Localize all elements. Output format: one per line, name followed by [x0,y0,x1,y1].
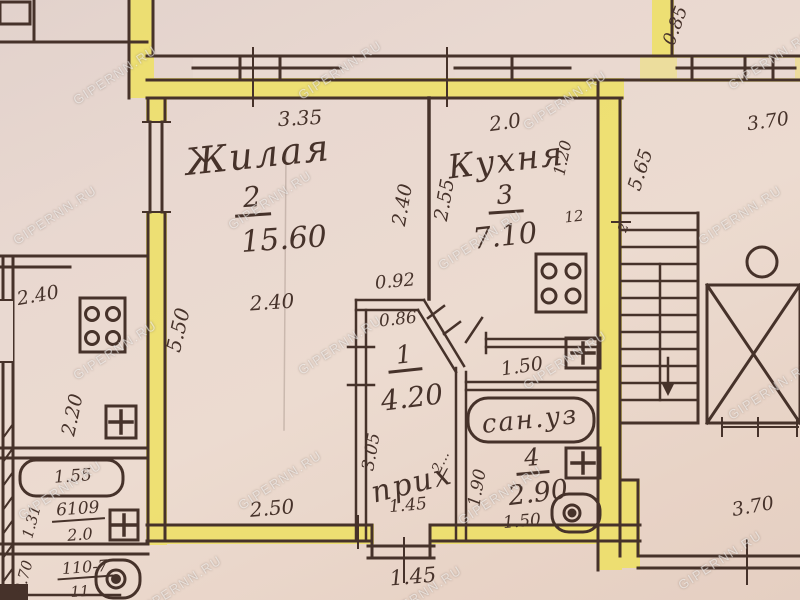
neighbor-code2-den: 11 [70,584,90,600]
garbage-chute-icon [747,247,777,277]
dim-hall-top: 0.86 [378,310,417,331]
window-kitchen [455,56,570,80]
staircase [612,213,698,423]
neighbor-code1-den: 2.0 [67,526,94,544]
dim-living-top: 3.35 [277,107,323,129]
room-number-hallway: 1 [386,340,423,373]
window-party-wall [143,122,170,212]
dim-kitchen-top: 2.0 [488,110,522,134]
dim-bath-bottom: 1.50 [502,512,541,532]
neighbor-code1: 6109 [51,499,106,523]
floor-plan-scan: Жилая 2 15.60 3.35 2.40 5.50 2.40 2.50 К… [0,0,800,600]
neighbor-code2: 110-7 [56,558,113,581]
note-kitchen-12: 12 [564,209,585,226]
dim-living-mid: 2.40 [249,290,295,313]
dim-hall-width: 1.45 [388,496,427,516]
stove-icon [536,254,586,312]
room-area-hallway: 4.20 [379,380,444,415]
dim-niche: 0.92 [374,271,415,292]
room-area-living: 15.60 [240,222,328,258]
